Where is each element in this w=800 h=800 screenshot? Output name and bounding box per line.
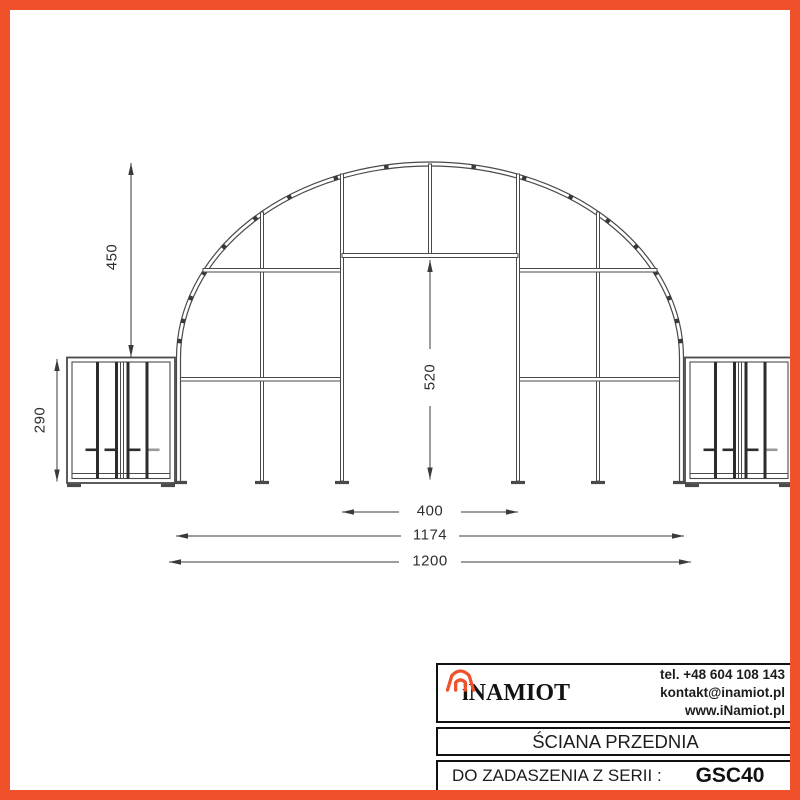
drawing-title-row: ŚCIANA PRZEDNIA	[436, 727, 795, 756]
title-block-header: iNAMIOT tel. +48 604 108 143 kontakt@ina…	[436, 663, 795, 723]
left-side-door-box	[67, 358, 175, 486]
dimension-frame-span: 1174	[413, 527, 447, 544]
series-code: GSC40	[670, 764, 790, 788]
tent-icon	[444, 665, 477, 692]
right-side-door-box	[685, 358, 793, 486]
dimension-total-width: 1200	[412, 553, 447, 570]
dimension-box-height: 290	[32, 407, 49, 434]
brand-name: iNAMIOT	[462, 681, 570, 705]
series-label: DO ZADASZENIA Z SERII :	[452, 766, 662, 786]
dimension-door-width: 400	[417, 503, 444, 520]
series-row: DO ZADASZENIA Z SERII : GSC40	[436, 760, 795, 792]
contact-info: tel. +48 604 108 143 kontakt@inamiot.pl …	[660, 666, 793, 720]
contact-website: www.iNamiot.pl	[660, 702, 785, 720]
contact-email: kontakt@inamiot.pl	[660, 684, 785, 702]
contact-phone: tel. +48 604 108 143	[660, 666, 785, 684]
drawing-sheet: 450 290 520 400 1174 1200 iNAMIOT tel. +…	[0, 0, 800, 800]
dimension-door-height: 520	[422, 364, 439, 391]
brand-logo: iNAMIOT	[462, 681, 570, 705]
dimension-arch-height: 450	[104, 244, 121, 271]
drawing-title: ŚCIANA PRZEDNIA	[532, 731, 699, 753]
